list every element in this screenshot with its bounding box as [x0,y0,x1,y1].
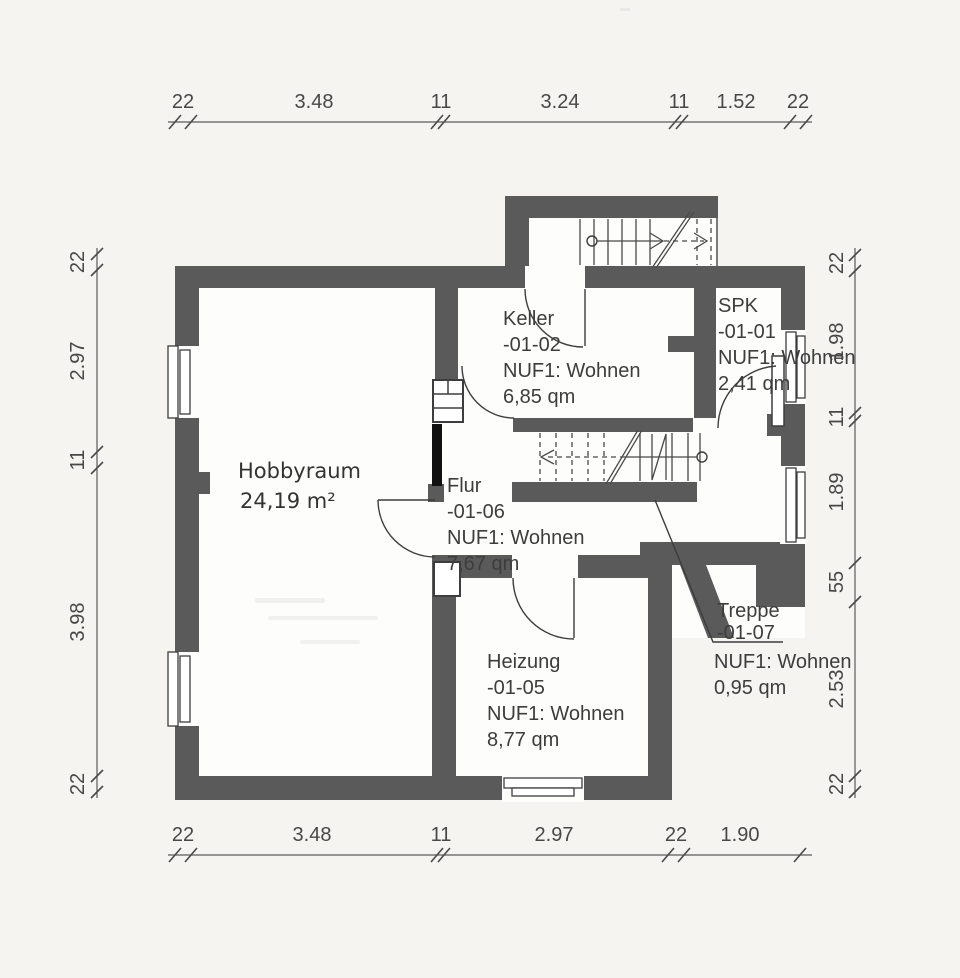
room-code: -01-02 [503,334,561,356]
room-area: 0,95 qm [714,677,786,699]
room-usage: NUF1: Wohnen [487,703,624,725]
dimension-label: 3.24 [541,91,580,113]
room-code: -01-06 [447,501,505,523]
window [168,652,178,726]
door-leaf-open [432,424,442,486]
wall [435,288,458,382]
wall-pillar [199,472,210,494]
window [786,468,796,542]
window [168,346,178,418]
floorplan-page: Hobbyraum 24,19 m² Keller -01-02 NUF1: W… [0,0,960,978]
dimension-label: 3.98 [67,603,89,642]
dimension-label: 11 [431,91,452,113]
dimension-label: 11 [669,91,690,113]
room-area: 2,41 qm [718,373,790,395]
room-area: 8,77 qm [487,729,559,751]
wall [505,196,718,218]
wall [513,418,693,432]
window [797,472,805,538]
dimension-label: 22 [665,824,687,846]
dimension-label: 2.97 [535,824,574,846]
window [180,350,190,414]
window [512,788,574,796]
dimension-label: 22 [787,91,809,113]
wall [781,266,805,607]
dimension-label: 3.48 [293,824,332,846]
room-name: Heizung [487,651,560,673]
dimension-label: 22 [67,773,89,795]
dimension-label: 1.52 [717,91,756,113]
room-code: -01-01 [718,321,776,343]
room-area: 6,85 qm [503,386,575,408]
dimension-label: 11 [431,824,452,846]
window [504,778,582,788]
room-name: Hobbyraum [238,459,361,483]
dimension-label: 1.90 [721,824,760,846]
wall [512,482,697,502]
dimension-label: 2.53 [826,670,848,709]
room-name: Keller [503,308,554,330]
room-name: Flur [447,475,482,497]
wall [175,266,525,288]
dimension-label: 22 [826,252,848,274]
room-usage: NUF1: Wohnen [503,360,640,382]
dimension-label: 1.98 [826,323,848,362]
window [180,656,190,722]
dimension-label: 22 [172,824,194,846]
wall [648,565,672,776]
dimension-label: 22 [67,251,89,273]
wall [640,542,782,565]
room-area: 7,67 qm [447,553,519,575]
dimension-label: 11 [67,450,89,471]
wall [578,555,648,578]
wall [668,336,696,352]
room-name: Treppe [717,600,780,622]
wall [585,266,805,288]
dimension-label: 2.97 [67,342,89,381]
dimension-label: 55 [826,571,848,593]
dimension-label: 22 [826,773,848,795]
wall [175,776,672,800]
dimension-label: 11 [826,407,848,428]
dimension-label: 3.48 [295,91,334,113]
room-usage: NUF1: Wohnen [447,527,584,549]
room-code: -01-07 [717,622,775,644]
floorplan-svg: Hobbyraum 24,19 m² Keller -01-02 NUF1: W… [0,0,960,978]
dimension-label: 1.89 [826,473,848,512]
dimension-label: 22 [172,91,194,113]
wall [694,288,716,418]
room-code: -01-05 [487,677,545,699]
room-area: 24,19 m² [240,489,336,513]
room-name: SPK [718,295,759,317]
